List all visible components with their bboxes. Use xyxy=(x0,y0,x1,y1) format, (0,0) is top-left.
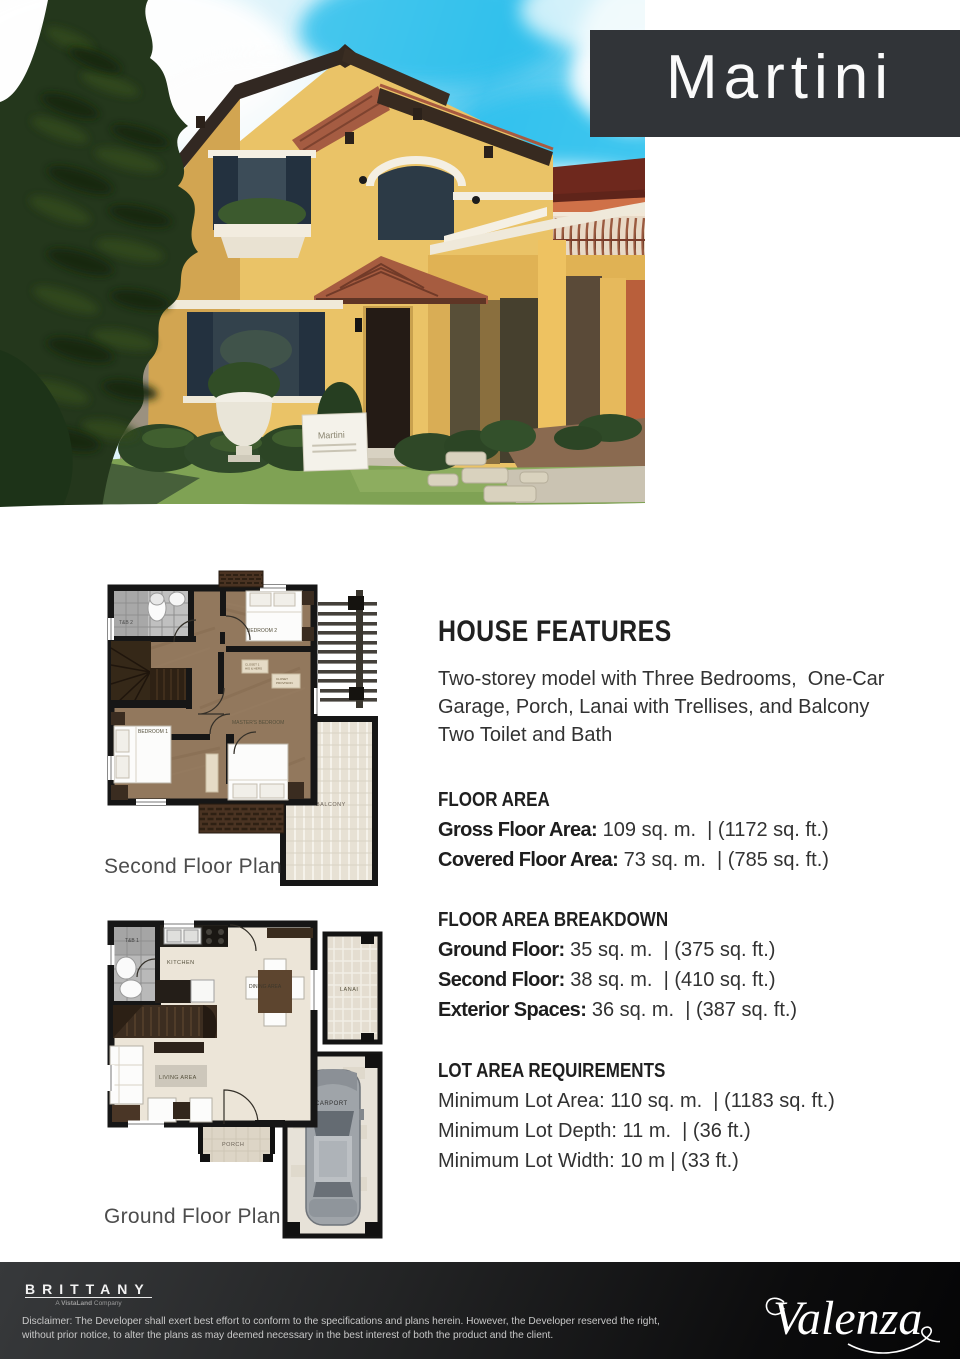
svg-text:Valenza: Valenza xyxy=(773,1292,922,1345)
svg-text:HIS & HERS: HIS & HERS xyxy=(245,667,262,671)
svg-text:CARPORT: CARPORT xyxy=(315,1101,348,1107)
svg-text:BEDROOM 2: BEDROOM 2 xyxy=(247,628,277,634)
svg-text:DINING AREA: DINING AREA xyxy=(249,984,282,990)
svg-text:BALCONY: BALCONY xyxy=(316,802,346,808)
svg-text:PROVISION: PROVISION xyxy=(276,681,293,685)
svg-text:KITCHEN: KITCHEN xyxy=(167,960,195,966)
svg-text:Martini: Martini xyxy=(318,430,345,441)
svg-text:T&B 1: T&B 1 xyxy=(125,938,139,944)
svg-text:MASTER'S BEDROOM: MASTER'S BEDROOM xyxy=(232,720,284,726)
svg-text:T&B 2: T&B 2 xyxy=(119,620,133,626)
svg-text:BEDROOM 1: BEDROOM 1 xyxy=(138,729,168,735)
svg-text:PORCH: PORCH xyxy=(222,1142,244,1148)
svg-text:LIVING AREA: LIVING AREA xyxy=(159,1075,197,1081)
svg-text:LANAI: LANAI xyxy=(340,987,358,993)
